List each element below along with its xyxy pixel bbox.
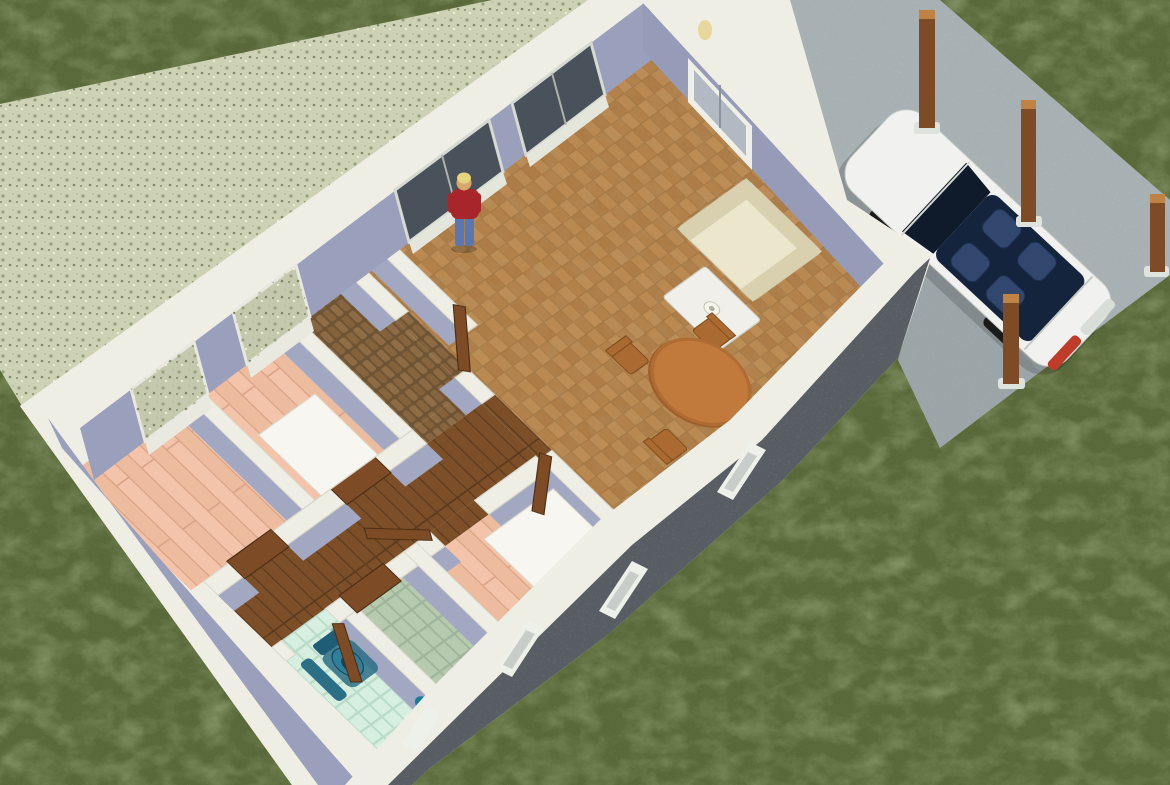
- person-leg: [455, 215, 464, 246]
- person-torso: [451, 189, 479, 219]
- person-hair: [457, 173, 471, 184]
- scene-svg: [0, 0, 1170, 785]
- person-leg: [465, 215, 474, 246]
- render-canvas: [0, 0, 1170, 785]
- person-shadow: [451, 245, 477, 253]
- open-door: [364, 528, 432, 540]
- wall-ornament: [698, 20, 712, 40]
